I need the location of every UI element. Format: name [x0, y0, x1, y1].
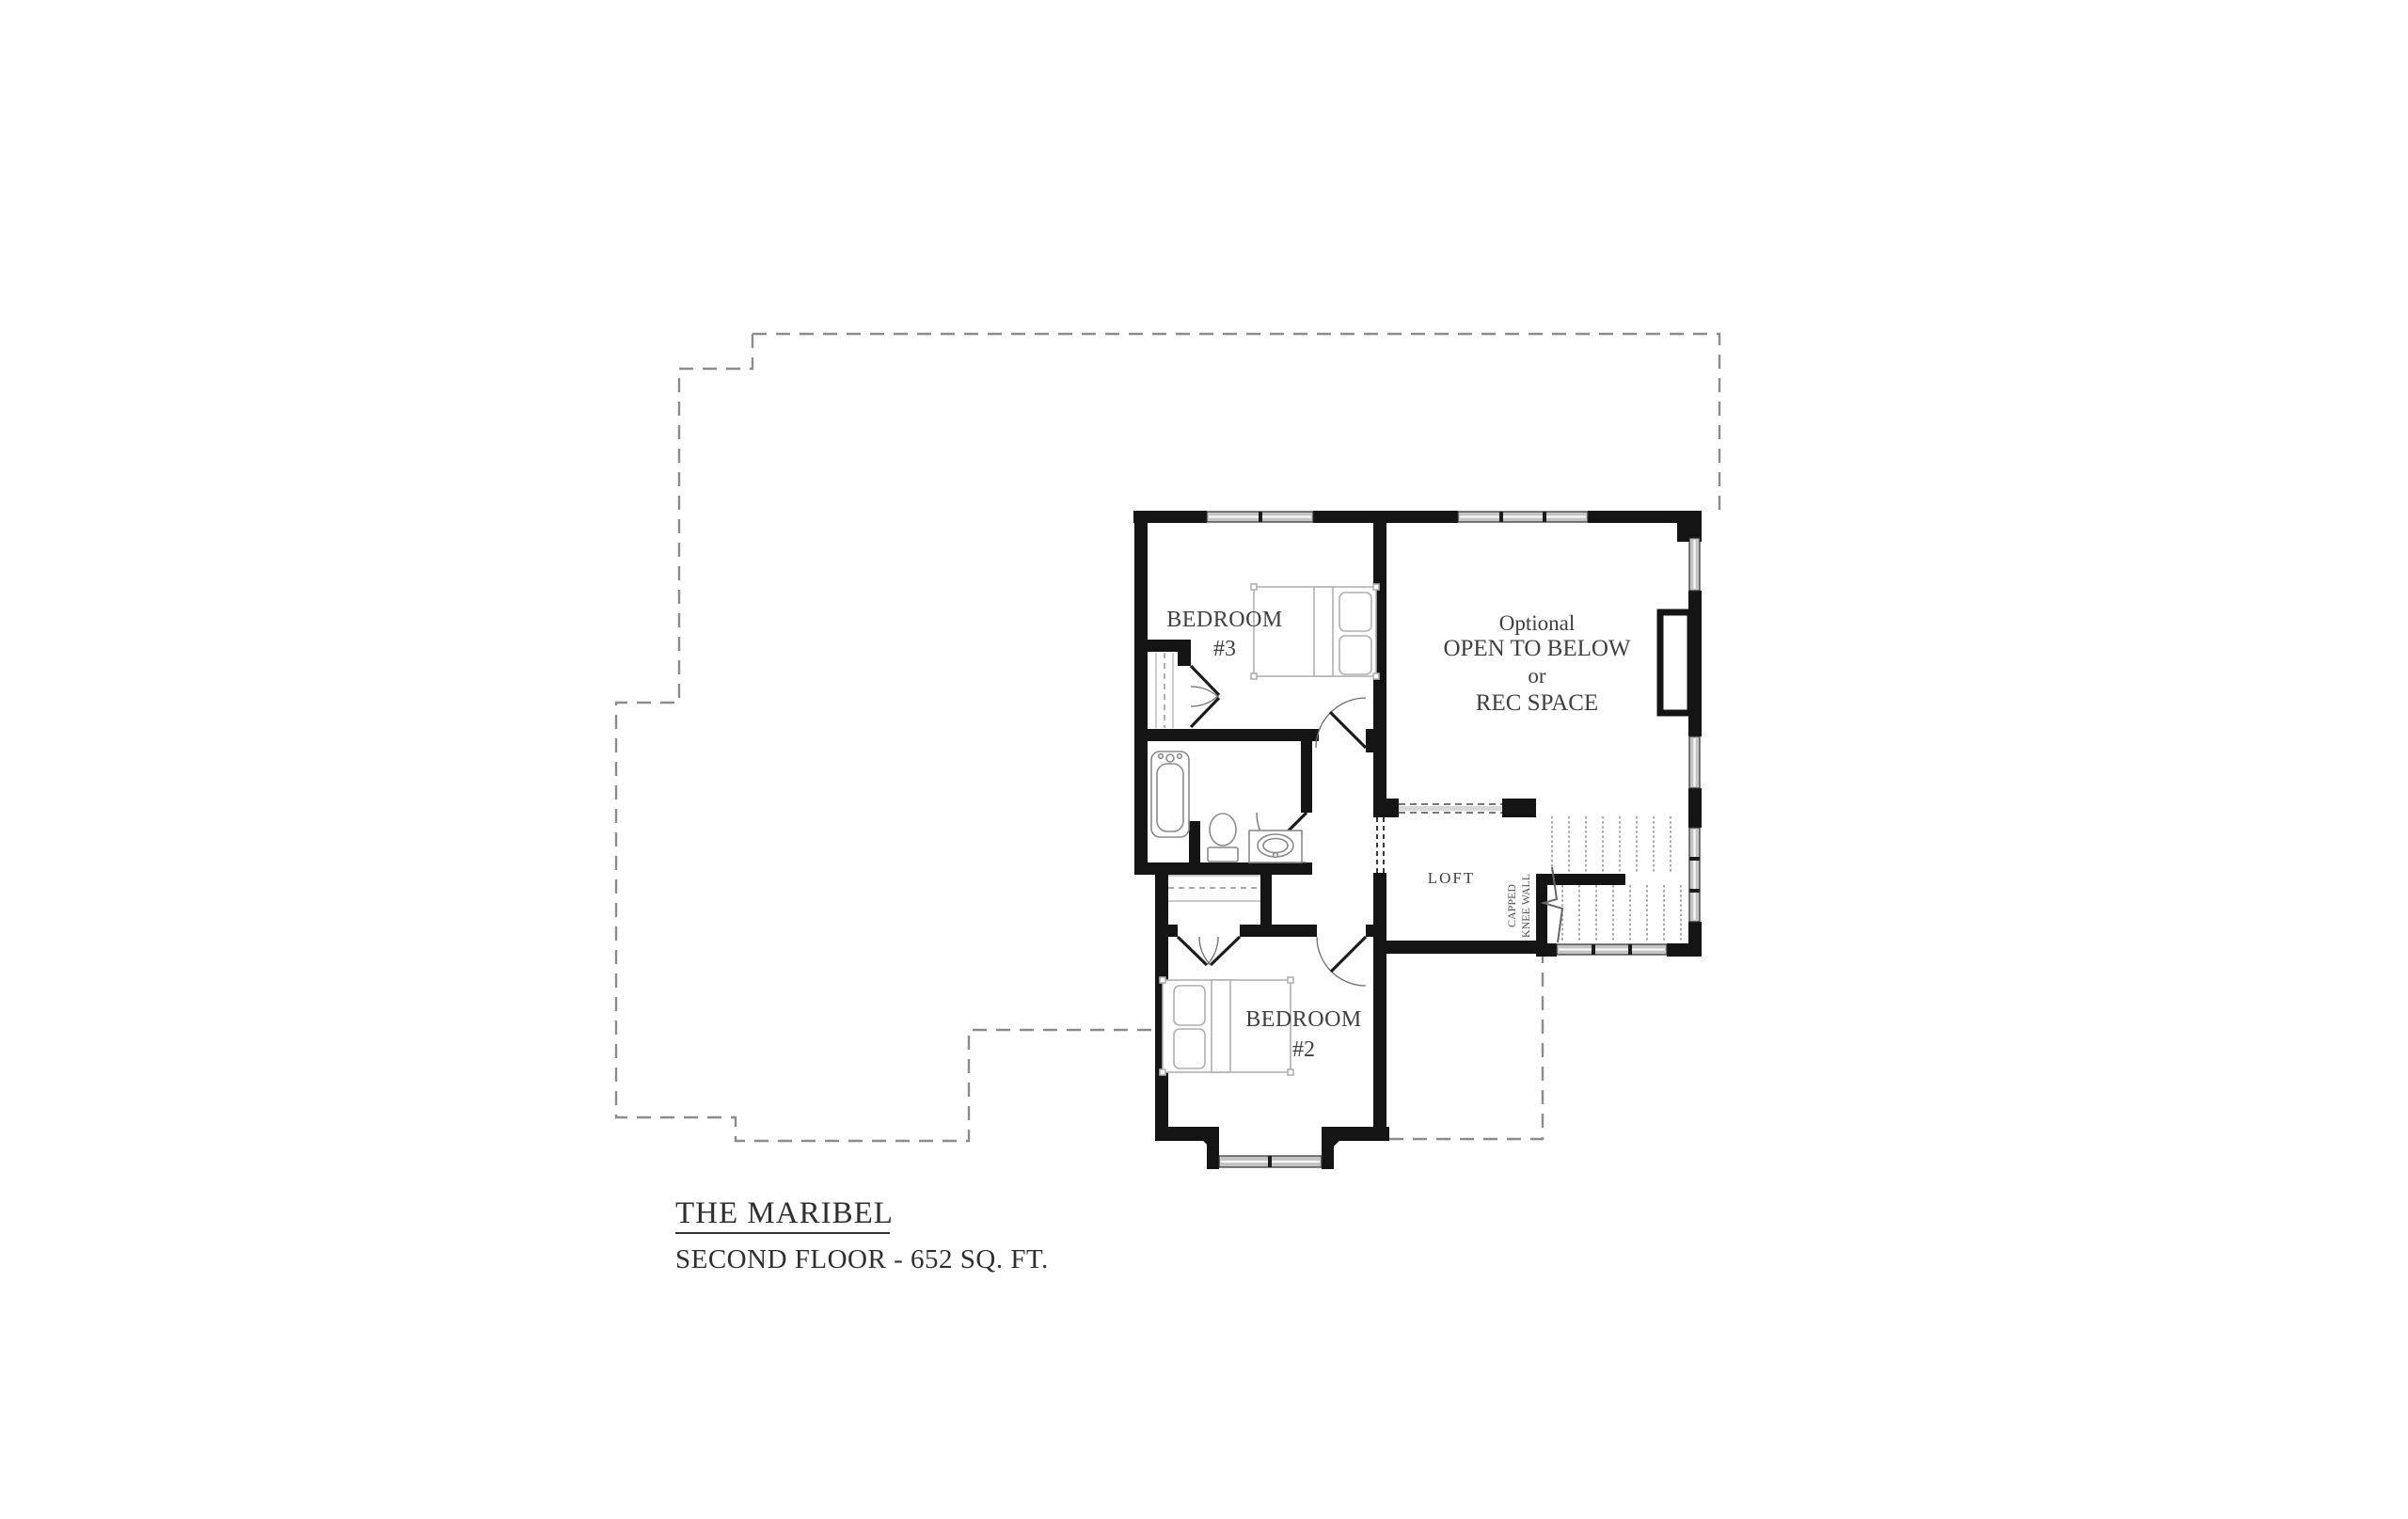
bedroom3-closet-shelving — [1156, 653, 1173, 728]
window-loft — [1689, 828, 1700, 922]
loft-knee-wall — [1399, 804, 1502, 813]
bedroom3-label-line1: BEDROOM — [1166, 608, 1283, 632]
bedroom2-door — [1317, 937, 1366, 986]
bathtub — [1151, 752, 1189, 837]
rec-space-label-line3: or — [1528, 664, 1546, 688]
media-niche — [1660, 612, 1690, 713]
stair-treads-upper — [1552, 816, 1671, 874]
window-top-left — [1207, 512, 1313, 522]
bedroom3-label-line2: #3 — [1213, 637, 1236, 661]
toilet — [1208, 814, 1238, 862]
floor-plan-drawing: BEDROOM #3 Optional OPEN TO BELOW or REC… — [0, 0, 2408, 1519]
window-bay — [1219, 1156, 1322, 1167]
floor-plan-page: BEDROOM #3 Optional OPEN TO BELOW or REC… — [0, 0, 2408, 1519]
loft-label: LOFT — [1428, 869, 1476, 887]
loft-cased-opening — [1377, 817, 1384, 873]
rec-space-label-line1: Optional — [1499, 611, 1576, 635]
bedroom2-label-line2: #2 — [1292, 1037, 1315, 1062]
sink-vanity — [1249, 831, 1302, 862]
bedroom2-closet-shelving — [1168, 876, 1260, 901]
floor-label: SECOND FLOOR - 652 SQ. FT. — [675, 1244, 1049, 1274]
knee-wall-note-line1: CAPPED — [1505, 884, 1518, 927]
doors — [1178, 666, 1366, 986]
window-stairs — [1557, 944, 1667, 955]
knee-wall-note-line2: KNEE WALL — [1519, 874, 1532, 938]
window-rec-upper — [1689, 538, 1700, 591]
bedroom2-label-line1: BEDROOM — [1245, 1007, 1362, 1032]
window-rec-lower — [1689, 736, 1700, 788]
rec-space-label-line2: OPEN TO BELOW — [1443, 636, 1630, 661]
rec-space-label-line4: REC SPACE — [1476, 690, 1598, 716]
stair-treads-lower — [1562, 885, 1681, 942]
bedroom3-door — [1316, 698, 1366, 748]
bedroom2-closet-doors — [1178, 937, 1240, 965]
title-block: THE MARIBEL SECOND FLOOR - 652 SQ. FT. — [675, 1196, 1049, 1274]
bedroom3-closet-doors — [1191, 666, 1219, 727]
plan-name: THE MARIBEL — [675, 1196, 894, 1230]
window-top-right — [1458, 512, 1588, 522]
